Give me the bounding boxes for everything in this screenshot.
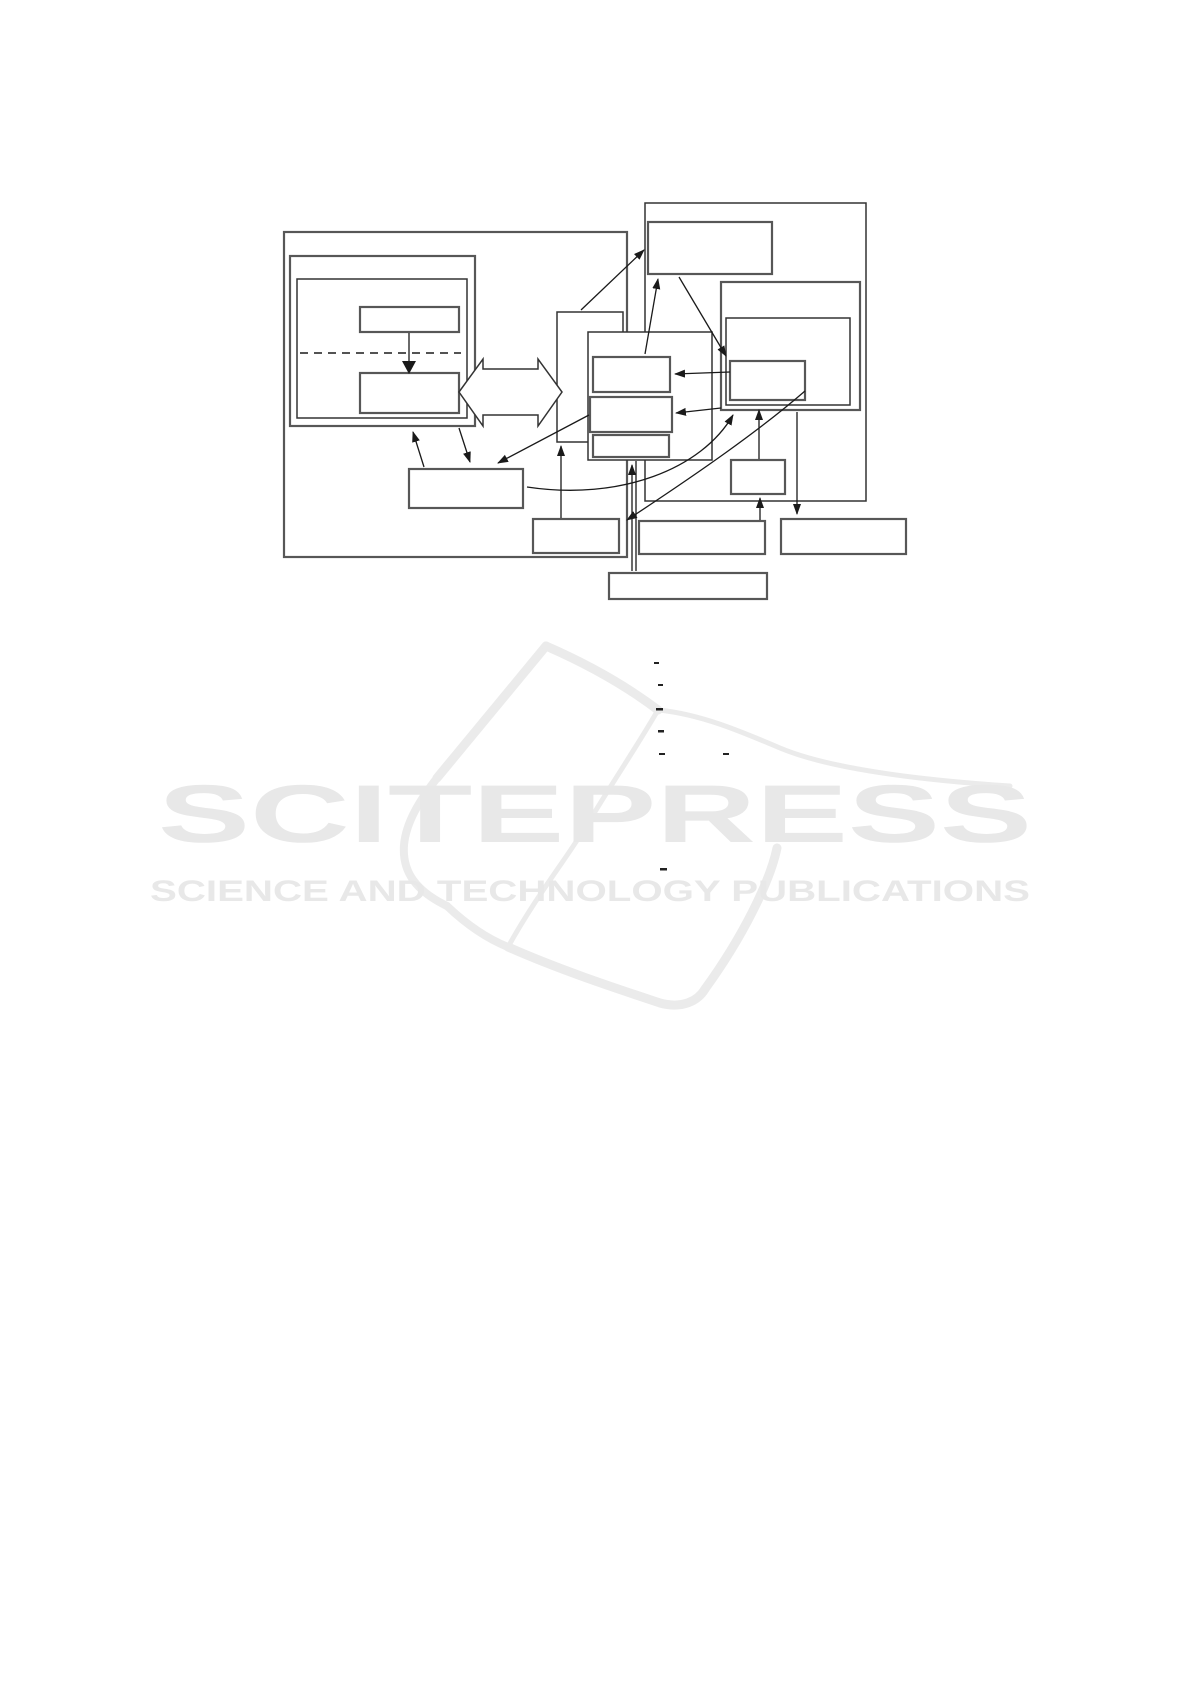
watermark-book-stroke xyxy=(437,646,546,778)
watermark-book-stroke xyxy=(447,906,508,947)
bullet-dash-3 xyxy=(656,708,663,711)
bullet-dash-5 xyxy=(659,753,665,755)
diagram-box-left-lower-box xyxy=(360,373,459,413)
bullet-dash-1 xyxy=(654,662,659,664)
diagram-box-left-top-box xyxy=(360,307,459,332)
diagram-box-stacked-box-3 xyxy=(593,435,669,457)
diagram-box-top-right-box xyxy=(648,222,772,274)
diagram-box-stacked-box-1 xyxy=(593,357,670,392)
diagram-box-stacked-box-2 xyxy=(590,397,672,432)
diagram-box-bottom-right-box xyxy=(781,519,906,554)
diagram-box-bottom-wide-box xyxy=(609,573,767,599)
bullet-dash-4 xyxy=(658,730,664,733)
diagram-box-right-connector-box xyxy=(731,460,785,494)
watermark-book-stroke xyxy=(508,947,705,1005)
watermark-subtitle: SCIENCE AND TECHNOLOGY PUBLICATIONS xyxy=(150,875,1030,908)
diagram-box-bottom-left-box xyxy=(533,519,619,553)
document-page: SCITEPRESS SCIENCE AND TECHNOLOGY PUBLIC… xyxy=(0,0,1191,1684)
bullet-dash-7 xyxy=(660,868,667,871)
diagram-box-bottom-middle-box xyxy=(639,521,765,554)
architecture-figure: SCITEPRESS SCIENCE AND TECHNOLOGY PUBLIC… xyxy=(0,0,1191,1100)
bullet-dash-6 xyxy=(723,753,729,755)
diagram-box-left-wide-box xyxy=(409,469,523,508)
watermark-book-stroke xyxy=(705,848,777,989)
watermark-book-stroke xyxy=(546,646,658,710)
diagram-box-right-small-inner-box xyxy=(730,361,805,400)
bullet-dash-2 xyxy=(658,684,663,686)
watermark-title: SCITEPRESS xyxy=(158,769,1032,860)
